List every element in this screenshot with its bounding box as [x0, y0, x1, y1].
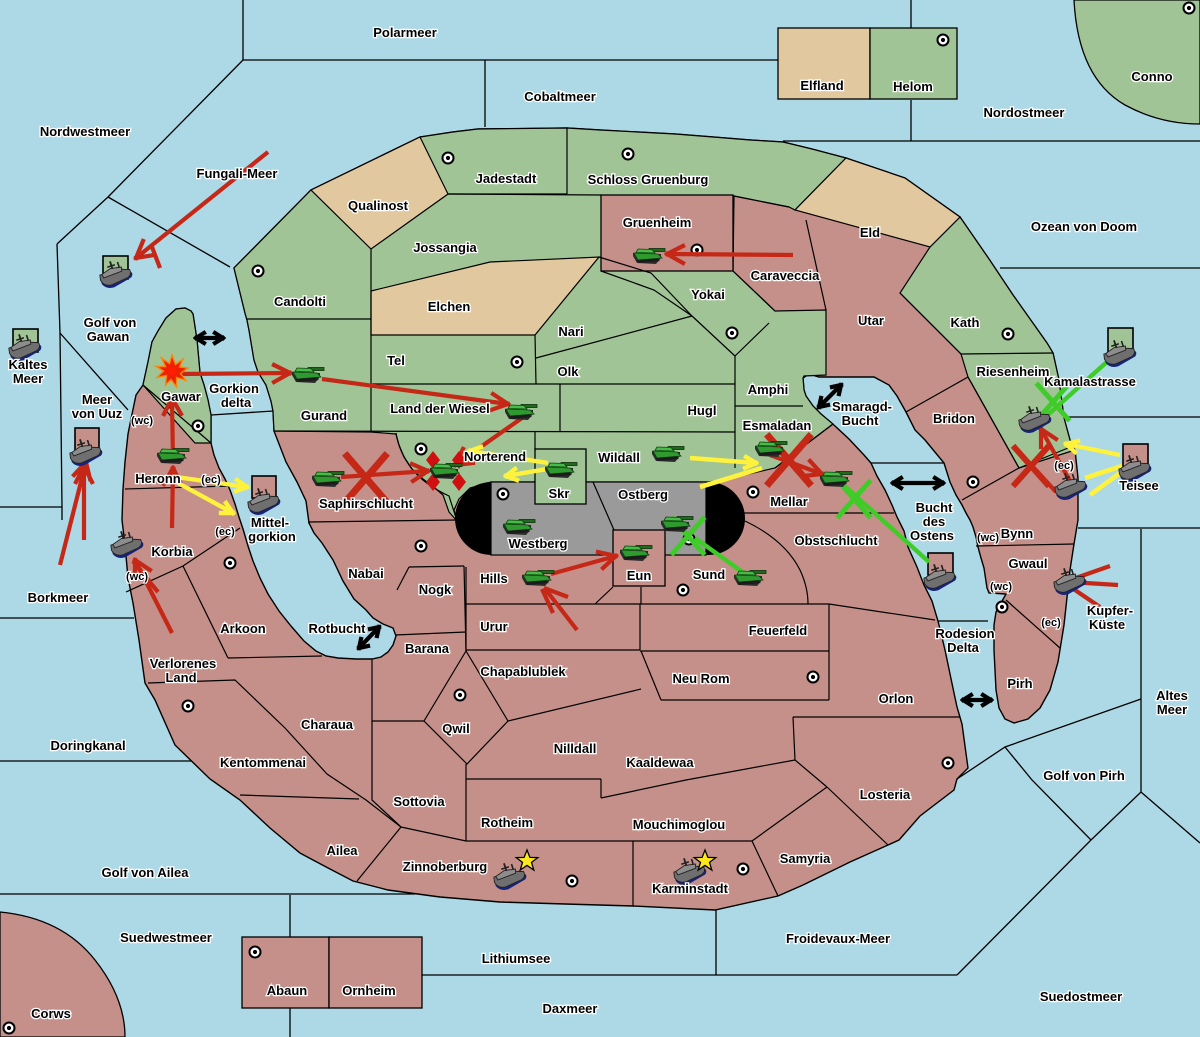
svg-text:Helom: Helom [893, 79, 933, 94]
svg-text:Amphi: Amphi [748, 382, 788, 397]
svg-text:Bridon: Bridon [933, 411, 975, 426]
svg-text:Neu Rom: Neu Rom [672, 671, 729, 686]
svg-text:Mittel-: Mittel- [251, 515, 289, 530]
svg-text:Teisee: Teisee [1119, 478, 1159, 493]
svg-text:(ec): (ec) [215, 526, 235, 538]
svg-text:Sund: Sund [693, 567, 726, 582]
svg-text:Froidevaux-Meer: Froidevaux-Meer [786, 931, 890, 946]
svg-text:Nordostmeer: Nordostmeer [984, 105, 1065, 120]
svg-text:Candolti: Candolti [274, 294, 326, 309]
svg-text:Kaaldewaa: Kaaldewaa [626, 755, 694, 770]
svg-text:Ozean von Doom: Ozean von Doom [1031, 219, 1137, 234]
svg-text:Golf von Pirh: Golf von Pirh [1043, 768, 1125, 783]
svg-text:Kath: Kath [951, 315, 980, 330]
svg-text:gorkion: gorkion [248, 529, 296, 544]
svg-text:Corws: Corws [31, 1006, 71, 1021]
svg-text:Tel: Tel [387, 353, 405, 368]
svg-text:Qwil: Qwil [442, 721, 469, 736]
svg-text:Meer: Meer [13, 371, 43, 386]
svg-text:Samyria: Samyria [780, 851, 831, 866]
svg-text:Suedwestmeer: Suedwestmeer [120, 930, 212, 945]
svg-text:Norterend: Norterend [464, 449, 526, 464]
svg-text:Smaragd-: Smaragd- [832, 399, 892, 414]
svg-text:Losteria: Losteria [860, 787, 911, 802]
svg-text:Küste: Küste [1089, 617, 1125, 632]
svg-text:Suedostmeer: Suedostmeer [1040, 989, 1122, 1004]
svg-text:Nordwestmeer: Nordwestmeer [40, 124, 130, 139]
svg-text:Caraveccia: Caraveccia [751, 268, 820, 283]
svg-text:Bucht: Bucht [916, 500, 954, 515]
svg-text:Jadestadt: Jadestadt [476, 171, 537, 186]
svg-text:Mouchimoglou: Mouchimoglou [633, 817, 725, 832]
svg-text:Verlorenes: Verlorenes [150, 656, 217, 671]
svg-text:Yokai: Yokai [691, 287, 725, 302]
svg-text:Gruenheim: Gruenheim [623, 215, 692, 230]
svg-text:Land: Land [165, 670, 196, 685]
svg-text:(wc): (wc) [990, 581, 1012, 593]
svg-text:Rotbucht: Rotbucht [308, 621, 366, 636]
svg-text:Eun: Eun [627, 568, 652, 583]
svg-text:Kentommenai: Kentommenai [220, 755, 306, 770]
svg-text:Saphirschlucht: Saphirschlucht [319, 496, 414, 511]
svg-text:Qualinost: Qualinost [348, 198, 409, 213]
svg-text:Rodesion: Rodesion [935, 626, 994, 641]
svg-text:(wc): (wc) [131, 415, 153, 427]
svg-text:Rotheim: Rotheim [481, 815, 533, 830]
svg-text:Nari: Nari [558, 324, 583, 339]
svg-text:Jossangia: Jossangia [413, 240, 477, 255]
svg-text:Ostberg: Ostberg [618, 487, 668, 502]
svg-text:Kupfer-: Kupfer- [1087, 603, 1133, 618]
svg-text:Arkoon: Arkoon [220, 621, 266, 636]
svg-text:Polarmeer: Polarmeer [373, 25, 437, 40]
svg-text:von Uuz: von Uuz [72, 406, 123, 421]
svg-text:Karminstadt: Karminstadt [652, 881, 729, 896]
svg-text:Hills: Hills [480, 571, 507, 586]
svg-text:Meer: Meer [82, 392, 112, 407]
svg-text:Wildall: Wildall [598, 450, 640, 465]
svg-text:Ailea: Ailea [326, 843, 358, 858]
svg-text:Barana: Barana [405, 641, 450, 656]
svg-text:des: des [923, 514, 945, 529]
svg-text:Zinnoberburg: Zinnoberburg [403, 859, 488, 874]
svg-text:Borkmeer: Borkmeer [28, 590, 89, 605]
svg-text:Conno: Conno [1131, 69, 1172, 84]
svg-text:Cobaltmeer: Cobaltmeer [524, 89, 596, 104]
svg-text:(ec): (ec) [1054, 460, 1074, 472]
svg-text:Delta: Delta [947, 640, 980, 655]
svg-text:delta: delta [221, 395, 252, 410]
svg-text:Kamalastrasse: Kamalastrasse [1044, 374, 1136, 389]
svg-text:Charaua: Charaua [301, 717, 354, 732]
svg-text:Obstschlucht: Obstschlucht [794, 533, 878, 548]
svg-text:Skr: Skr [549, 486, 570, 501]
svg-text:(wc): (wc) [977, 532, 999, 544]
svg-text:Esmaladan: Esmaladan [743, 418, 812, 433]
svg-text:Pirh: Pirh [1007, 676, 1032, 691]
svg-text:Hugl: Hugl [688, 403, 717, 418]
svg-text:Bynn: Bynn [1001, 526, 1034, 541]
svg-text:Westberg: Westberg [509, 536, 568, 551]
svg-text:Gawar: Gawar [161, 389, 201, 404]
svg-text:(ec): (ec) [201, 474, 221, 486]
svg-text:Fungali-Meer: Fungali-Meer [197, 166, 278, 181]
svg-text:Elfland: Elfland [800, 78, 843, 93]
svg-text:Urur: Urur [480, 619, 507, 634]
svg-text:Heronn: Heronn [135, 471, 181, 486]
svg-text:Golf von: Golf von [84, 315, 137, 330]
svg-text:Daxmeer: Daxmeer [543, 1001, 598, 1016]
svg-text:Gurand: Gurand [301, 408, 347, 423]
svg-text:Riesenheim: Riesenheim [977, 364, 1050, 379]
svg-text:Eld: Eld [860, 225, 880, 240]
svg-text:Nabai: Nabai [348, 566, 383, 581]
svg-text:Olk: Olk [558, 364, 580, 379]
svg-text:Feuerfeld: Feuerfeld [749, 623, 808, 638]
svg-text:Gawan: Gawan [87, 329, 130, 344]
svg-text:Korbia: Korbia [151, 544, 193, 559]
svg-text:Kaltes: Kaltes [8, 357, 47, 372]
svg-text:Gwaul: Gwaul [1008, 556, 1047, 571]
svg-text:Nogk: Nogk [419, 582, 452, 597]
svg-text:Land der Wiesel: Land der Wiesel [390, 401, 490, 416]
svg-text:Lithiumsee: Lithiumsee [482, 951, 551, 966]
svg-text:Elchen: Elchen [428, 299, 471, 314]
svg-text:Doringkanal: Doringkanal [50, 738, 125, 753]
svg-text:Ostens: Ostens [910, 528, 954, 543]
svg-text:Bucht: Bucht [842, 413, 880, 428]
svg-text:Sottovia: Sottovia [393, 794, 445, 809]
svg-text:Mellar: Mellar [770, 494, 808, 509]
svg-text:Schloss Gruenburg: Schloss Gruenburg [588, 172, 709, 187]
svg-text:Abaun: Abaun [267, 983, 308, 998]
svg-text:Nilldall: Nilldall [554, 741, 597, 756]
svg-text:Altes: Altes [1156, 688, 1188, 703]
svg-text:Chapablublek: Chapablublek [480, 664, 566, 679]
svg-text:Meer: Meer [1157, 702, 1187, 717]
svg-text:Ornheim: Ornheim [342, 983, 395, 998]
svg-text:(ec): (ec) [1041, 617, 1061, 629]
svg-text:Gorkion: Gorkion [209, 381, 259, 396]
svg-text:Utar: Utar [858, 313, 884, 328]
svg-text:(wc): (wc) [126, 571, 148, 583]
svg-text:Golf von Ailea: Golf von Ailea [102, 865, 190, 880]
svg-text:Orlon: Orlon [879, 691, 914, 706]
